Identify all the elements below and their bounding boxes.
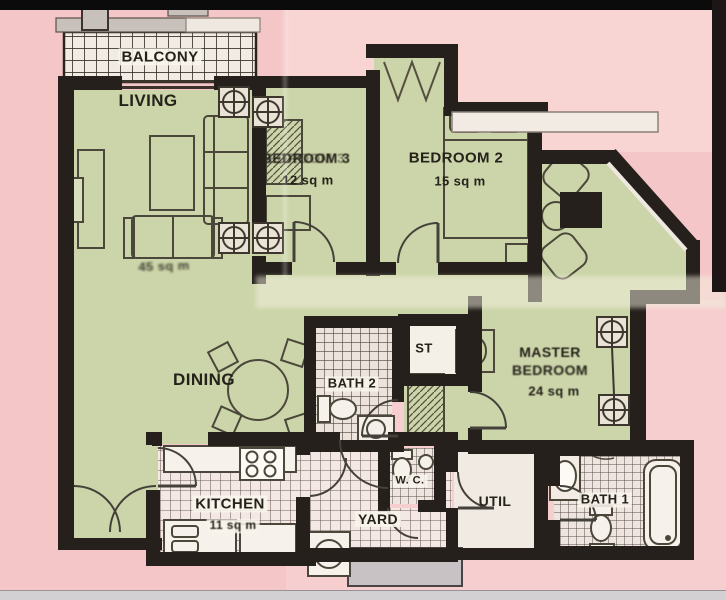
bath2-label: BATH 2 bbox=[325, 377, 379, 392]
bedroom3-area-label: 12 sq m bbox=[282, 173, 333, 188]
master-label-line1: MASTER bbox=[519, 344, 581, 360]
wc-label: W. C. bbox=[393, 475, 428, 488]
photo-right-edge bbox=[712, 0, 726, 292]
floor-plan-photo: BALCONY LIVING 45 sq m DINING BEDROOM 3 … bbox=[0, 0, 726, 600]
photo-bottom-edge bbox=[0, 590, 726, 600]
dining-label: DINING bbox=[173, 370, 235, 390]
master-area-label: 24 sq m bbox=[528, 384, 579, 399]
bedroom2-label: BEDROOM 2 bbox=[409, 150, 503, 167]
living-area-label: 45 sq m bbox=[138, 258, 190, 273]
bedroom2-area-label: 15 sq m bbox=[434, 174, 485, 189]
store-label: ST bbox=[415, 341, 432, 356]
toilet-icon-bath2 bbox=[318, 396, 356, 422]
balcony-sliding-door bbox=[122, 80, 214, 89]
util-label: UTIL bbox=[479, 493, 512, 509]
kitchen-label: KITCHEN bbox=[192, 495, 267, 512]
balcony-label: BALCONY bbox=[119, 48, 202, 65]
bedroom3-label: BEDROOM 3 bbox=[262, 150, 350, 166]
photo-top-edge bbox=[0, 0, 726, 10]
kitchen-area-label: 11 sq m bbox=[207, 519, 260, 533]
master-label-line2: BEDROOM bbox=[512, 362, 588, 378]
yard-label: YARD bbox=[355, 511, 401, 527]
stove-icon bbox=[240, 448, 284, 480]
bath1-label: BATH 1 bbox=[578, 493, 632, 508]
planter-ledge bbox=[452, 112, 658, 132]
living-label: LIVING bbox=[118, 91, 177, 111]
